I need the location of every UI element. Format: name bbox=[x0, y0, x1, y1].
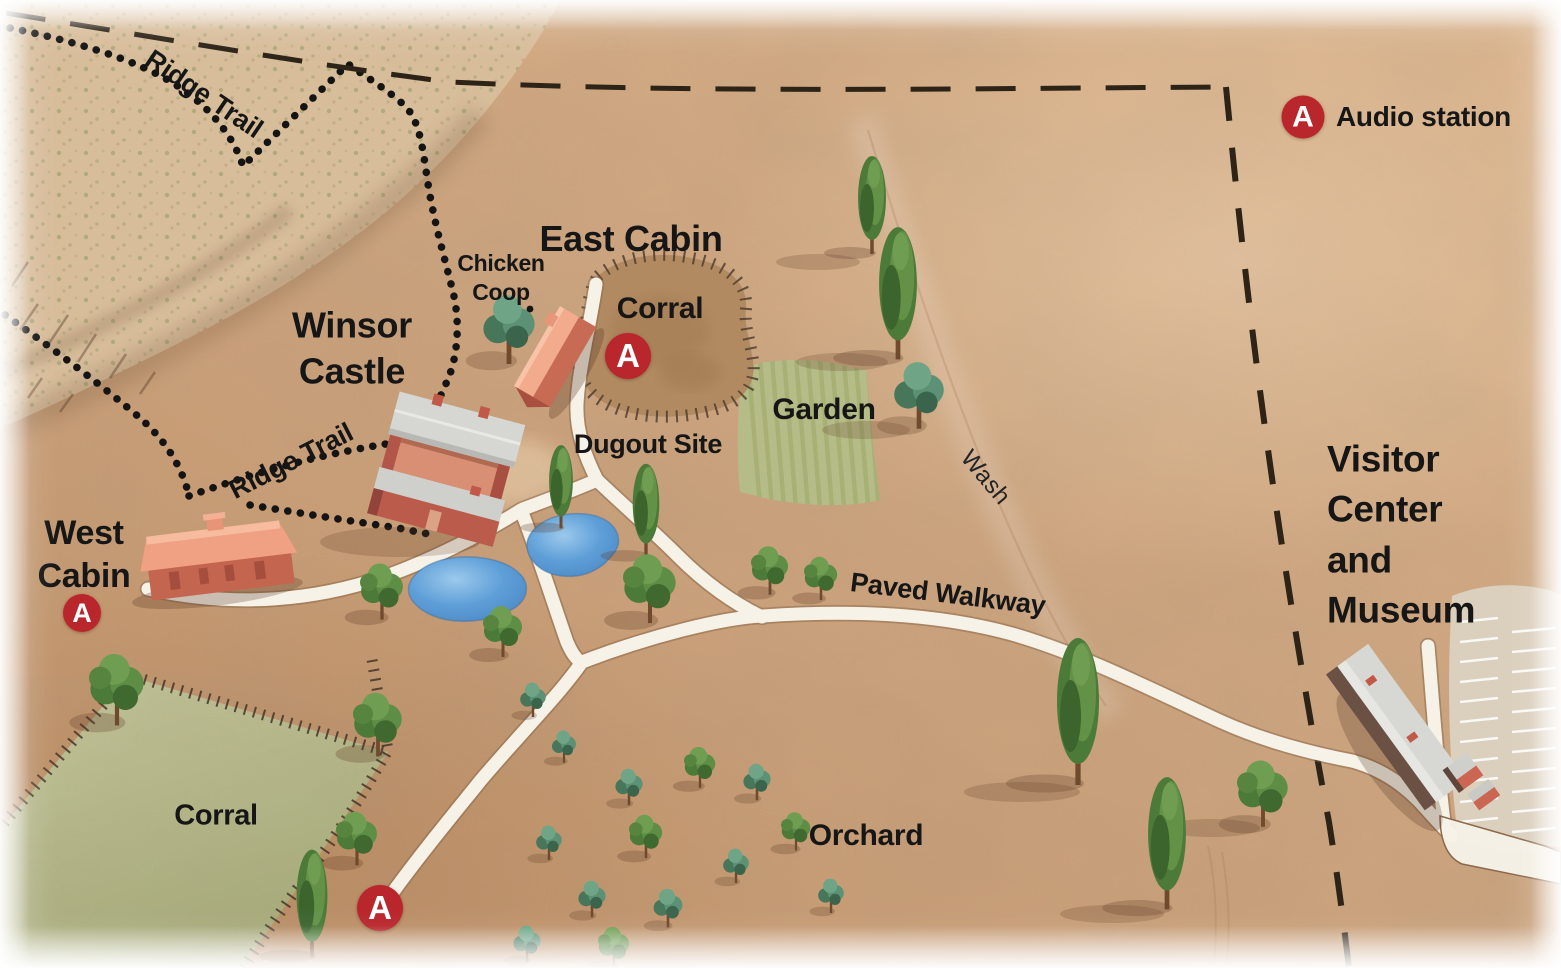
audio-station-marker-west-cabin: A bbox=[63, 594, 101, 632]
audio-station-marker-orchard-path: A bbox=[357, 885, 403, 931]
audio-station-marker-legend: A bbox=[1282, 96, 1325, 139]
audio-station-letter: A bbox=[368, 889, 392, 927]
east-corral bbox=[579, 255, 754, 417]
audio-station-marker-east-corral: A bbox=[605, 333, 651, 379]
audio-station-letter: A bbox=[616, 337, 640, 375]
audio-station-letter: A bbox=[72, 598, 92, 629]
audio-station-letter: A bbox=[1292, 100, 1314, 134]
pipe-spring-historic-site-map: Ridge Trail East Cabin Chicken Coop Corr… bbox=[0, 0, 1561, 968]
parking-lot bbox=[1449, 585, 1561, 850]
map-illustration bbox=[0, 0, 1561, 968]
chicken-coop-dot bbox=[527, 306, 534, 313]
